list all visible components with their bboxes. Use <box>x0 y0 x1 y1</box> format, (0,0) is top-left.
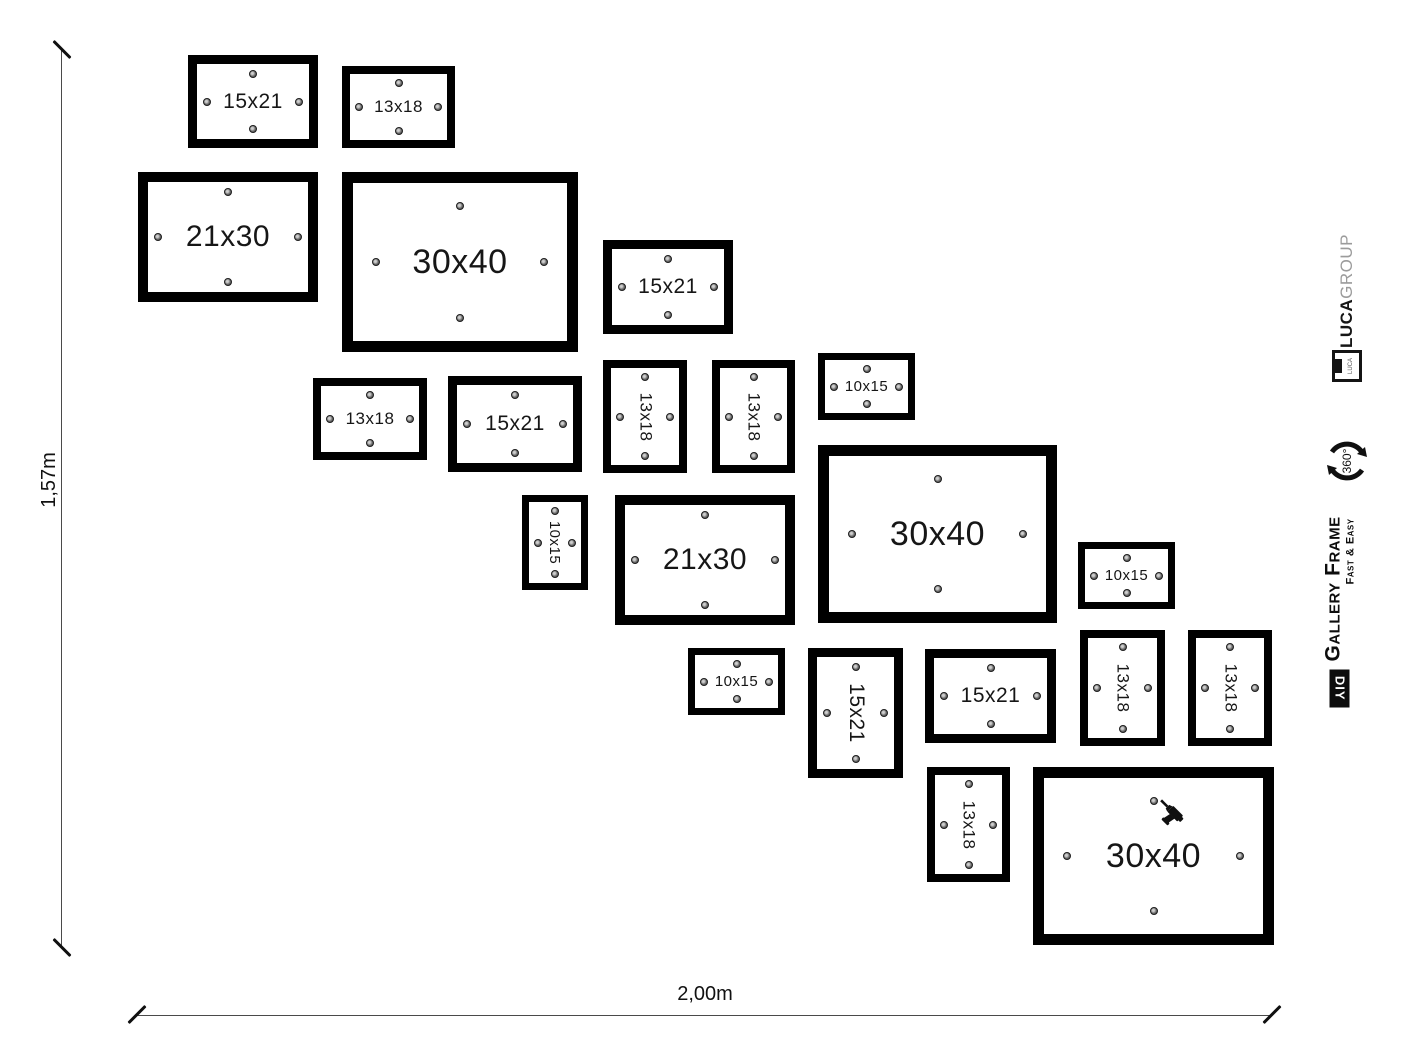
screw-dot <box>551 570 559 578</box>
screw-dot <box>852 663 860 671</box>
screw-dot <box>355 103 363 111</box>
wall-height-label: 1,57m <box>38 450 58 510</box>
screw-dot <box>406 415 414 423</box>
frame-size-label: 15x21 <box>485 412 545 436</box>
screw-dot <box>224 188 232 196</box>
screw-dot <box>895 383 903 391</box>
luca-wordmark: LUCA <box>1337 299 1357 348</box>
drill-icon <box>1154 796 1188 830</box>
screw-dot <box>848 530 856 538</box>
screw-dot <box>733 660 741 668</box>
screw-dot <box>771 556 779 564</box>
screw-dot <box>1226 725 1234 733</box>
screw-dot <box>750 373 758 381</box>
screw-dot <box>1123 554 1131 562</box>
screw-dot <box>1251 684 1259 692</box>
screw-dot <box>641 452 649 460</box>
screw-dot <box>934 585 942 593</box>
group-wordmark: GROUP <box>1337 234 1357 299</box>
screw-dot <box>1093 684 1101 692</box>
frame-15x21-portrait[interactable]: 15x21 <box>808 648 903 778</box>
screw-dot <box>463 420 471 428</box>
screw-dot <box>701 511 709 519</box>
frame-size-label: 10x15 <box>547 521 564 564</box>
screw-dot <box>1150 907 1158 915</box>
screw-dot <box>987 720 995 728</box>
screw-dot <box>568 539 576 547</box>
screw-dot <box>1236 852 1244 860</box>
screw-dot <box>823 709 831 717</box>
frame-15x21-landscape[interactable]: 15x21 <box>925 649 1056 743</box>
frame-30x40-landscape[interactable]: 30x40 <box>818 445 1057 623</box>
frame-size-label: 13x18 <box>958 800 978 849</box>
screw-dot <box>1033 692 1041 700</box>
screw-dot <box>1144 684 1152 692</box>
frame-10x15-portrait[interactable]: 10x15 <box>522 495 588 590</box>
gallery-frame-logo: DIY Gallery Frame Fast & Easy <box>1323 543 1357 708</box>
screw-dot <box>989 821 997 829</box>
diy-badge: DIY <box>1330 670 1350 708</box>
screw-dot <box>863 400 871 408</box>
screw-dot <box>733 695 741 703</box>
rotation-360-icon: 360° <box>1323 437 1371 485</box>
screw-dot <box>987 664 995 672</box>
screw-dot <box>664 311 672 319</box>
screw-dot <box>249 70 257 78</box>
screw-dot <box>540 258 548 266</box>
frame-size-label: 21x30 <box>663 543 747 577</box>
frame-size-label: 30x40 <box>1106 837 1201 876</box>
screw-dot <box>1226 643 1234 651</box>
frame-size-label: 30x40 <box>890 515 985 554</box>
frame-size-label: 10x15 <box>845 378 888 395</box>
screw-dot <box>965 780 973 788</box>
frame-size-label: 15x21 <box>638 275 698 299</box>
frame-10x15-landscape[interactable]: 10x15 <box>818 353 915 420</box>
frame-13x18-portrait[interactable]: 13x18 <box>712 360 795 473</box>
frame-size-label: 10x15 <box>715 673 758 690</box>
screw-dot <box>395 79 403 87</box>
diy-label: DIY <box>1332 676 1347 701</box>
screw-dot <box>456 314 464 322</box>
frame-size-label: 13x18 <box>743 392 763 441</box>
frame-15x21-landscape[interactable]: 15x21 <box>603 240 733 334</box>
luca-logo-square <box>1335 359 1342 373</box>
frame-size-label: 30x40 <box>412 243 507 282</box>
frame-size-label: 15x21 <box>961 684 1021 708</box>
screw-dot <box>372 258 380 266</box>
screw-dot <box>830 383 838 391</box>
height-dimension-tick-bottom <box>52 938 71 957</box>
screw-dot <box>1063 852 1071 860</box>
screw-dot <box>559 420 567 428</box>
screw-dot <box>366 439 374 447</box>
wall-width-label: 2,00m <box>655 983 755 1006</box>
screw-dot <box>1119 643 1127 651</box>
screw-dot <box>725 413 733 421</box>
screw-dot <box>154 233 162 241</box>
frame-13x18-portrait[interactable]: 13x18 <box>1080 630 1165 746</box>
frame-size-label: 13x18 <box>1220 664 1240 713</box>
frame-15x21-landscape[interactable]: 15x21 <box>188 55 318 148</box>
screw-dot <box>511 449 519 457</box>
screw-dot <box>1123 589 1131 597</box>
screw-dot <box>631 556 639 564</box>
luca-logo-mini-text: LUCA <box>1348 358 1354 374</box>
height-dimension-tick-top <box>52 40 71 59</box>
frame-30x40-landscape[interactable]: 30x40 <box>1033 767 1274 945</box>
gallery-frame-wordmark: Gallery Frame Fast & Easy <box>1323 516 1357 661</box>
luca-group-logo-text: LUCAGROUP <box>1337 241 1357 341</box>
screw-dot <box>852 755 860 763</box>
screw-dot <box>700 678 708 686</box>
screw-dot <box>701 601 709 609</box>
screw-dot <box>511 391 519 399</box>
screw-dot <box>940 821 948 829</box>
gallery-frame-title: Gallery Frame <box>1323 516 1344 661</box>
screw-dot <box>534 539 542 547</box>
frame-size-label: 13x18 <box>346 409 395 429</box>
screw-dot <box>774 413 782 421</box>
frame-10x15-landscape[interactable]: 10x15 <box>688 648 785 715</box>
frame-size-label: 13x18 <box>635 392 655 441</box>
frame-21x30-landscape[interactable]: 21x30 <box>615 495 795 625</box>
frame-13x18-portrait[interactable]: 13x18 <box>1188 630 1272 746</box>
frame-size-label: 10x15 <box>1105 567 1148 584</box>
screw-dot <box>1155 572 1163 580</box>
screw-dot <box>710 283 718 291</box>
screw-dot <box>765 678 773 686</box>
screw-dot <box>940 692 948 700</box>
frame-30x40-landscape[interactable]: 30x40 <box>342 172 578 352</box>
screw-dot <box>666 413 674 421</box>
screw-dot <box>203 98 211 106</box>
gallery-wall-plan: 1,57m 2,00m 15x2113x1821x3030x4015x2113x… <box>0 0 1412 1063</box>
screw-dot <box>641 373 649 381</box>
screw-dot <box>456 202 464 210</box>
screw-dot <box>664 255 672 263</box>
frame-13x18-landscape[interactable]: 13x18 <box>313 378 427 460</box>
frame-13x18-portrait[interactable]: 13x18 <box>603 360 687 473</box>
screw-dot <box>1090 572 1098 580</box>
frame-size-label: 15x21 <box>844 683 868 743</box>
frame-21x30-landscape[interactable]: 21x30 <box>138 172 318 302</box>
screw-dot <box>965 861 973 869</box>
screw-dot <box>880 709 888 717</box>
screw-dot <box>249 125 257 133</box>
screw-dot <box>1201 684 1209 692</box>
screw-dot <box>750 452 758 460</box>
frame-13x18-portrait[interactable]: 13x18 <box>927 767 1010 882</box>
screw-dot <box>934 475 942 483</box>
height-dimension-line <box>61 50 62 948</box>
gallery-frame-tagline: Fast & Easy <box>1346 518 1357 584</box>
screw-dot <box>1019 530 1027 538</box>
frame-10x15-landscape[interactable]: 10x15 <box>1078 542 1175 609</box>
screw-dot <box>294 233 302 241</box>
screw-dot <box>224 278 232 286</box>
frame-size-label: 13x18 <box>1112 664 1132 713</box>
frame-size-label: 13x18 <box>374 97 423 117</box>
screw-dot <box>395 127 403 135</box>
screw-dot <box>295 98 303 106</box>
width-dimension-line <box>137 1015 1272 1016</box>
screw-dot <box>618 283 626 291</box>
screw-dot <box>326 415 334 423</box>
screw-dot <box>863 365 871 373</box>
frame-15x21-landscape[interactable]: 15x21 <box>448 376 582 472</box>
screw-dot <box>551 507 559 515</box>
screw-dot <box>434 103 442 111</box>
frame-size-label: 21x30 <box>186 220 270 254</box>
frame-13x18-landscape[interactable]: 13x18 <box>342 66 455 148</box>
frame-size-label: 15x21 <box>223 90 283 114</box>
screw-dot <box>616 413 624 421</box>
rotation-360-label: 360° <box>1340 448 1354 473</box>
screw-dot <box>1119 725 1127 733</box>
screw-dot <box>366 391 374 399</box>
luca-logo-icon: LUCA <box>1332 350 1362 382</box>
